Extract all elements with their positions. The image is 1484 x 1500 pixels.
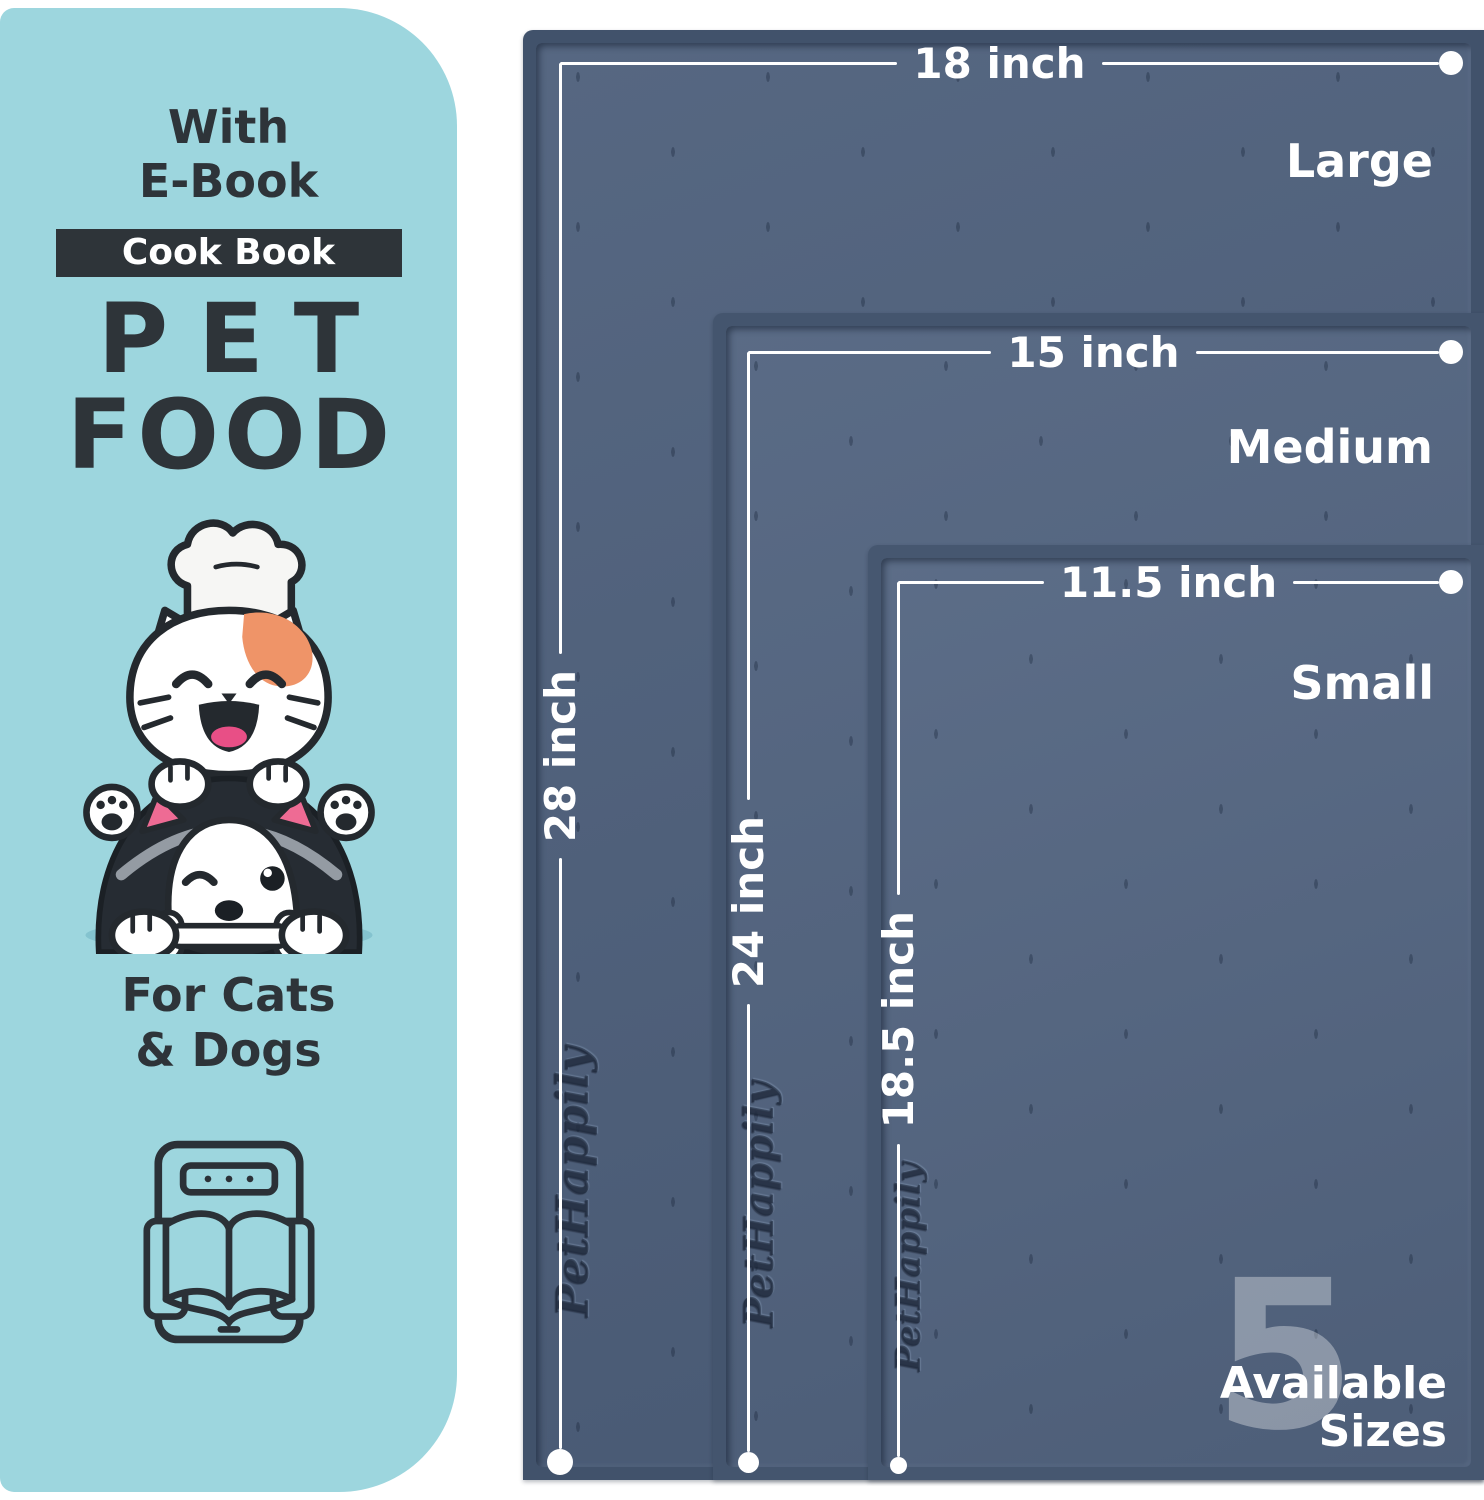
header-line2: E-Book <box>139 154 318 208</box>
dimension-line <box>747 352 750 800</box>
info-panel: With E-Book Cook Book PET FOOD <box>0 8 457 1492</box>
dimension-line <box>1102 62 1439 65</box>
dimension-label-large-width: 18 inch <box>897 39 1101 88</box>
dimension-length-medium: 24 inch <box>733 352 763 1473</box>
panel-header: With E-Book <box>0 100 457 209</box>
dimension-endpoint-dot <box>738 1452 759 1473</box>
cookbook-badge-label: Cook Book <box>122 232 335 273</box>
sizes-label-line1: Available <box>1220 1358 1447 1409</box>
dimension-endpoint-dot <box>547 1449 573 1475</box>
cookbook-badge: Cook Book <box>56 229 402 277</box>
dimension-line <box>1293 581 1439 584</box>
dimension-label-large-length: 28 inch <box>536 654 585 858</box>
dimension-line <box>559 858 562 1449</box>
product-infographic: With E-Book Cook Book PET FOOD <box>0 0 1484 1500</box>
ebook-icon <box>143 1136 315 1348</box>
dimension-width-small: 11.5 inch <box>898 569 1463 595</box>
size-label-small: Small <box>1290 656 1434 710</box>
size-label-large: Large <box>1286 134 1433 188</box>
dimension-length-small: 18.5 inch <box>883 582 913 1474</box>
dimension-line <box>897 1144 900 1457</box>
title-line1: PET <box>0 291 457 387</box>
dimension-line <box>748 351 991 354</box>
dimension-length-large: 28 inch <box>545 63 575 1475</box>
panel-footer: For Cats & Dogs <box>0 968 457 1078</box>
dimension-width-medium: 15 inch <box>748 339 1463 365</box>
size-label-medium: Medium <box>1227 420 1433 474</box>
footer-line1: For Cats <box>121 968 335 1022</box>
dimension-label-medium-width: 15 inch <box>991 328 1195 377</box>
dimension-endpoint-dot <box>1439 340 1463 364</box>
sizes-label-line2: Sizes <box>1319 1406 1447 1457</box>
dimension-line <box>898 581 1044 584</box>
ebook-icon-wrap <box>0 1136 457 1352</box>
pets-illustration <box>0 499 457 958</box>
dimension-label-medium-length: 24 inch <box>724 800 773 1004</box>
footer-line2: & Dogs <box>135 1023 321 1077</box>
dimension-line <box>1196 351 1439 354</box>
dimension-line <box>559 63 562 654</box>
dimension-endpoint-dot <box>1439 51 1463 75</box>
cat-chef-dog-illustration <box>59 499 399 954</box>
title-line2: FOOD <box>0 387 457 483</box>
dimension-label-small-length: 18.5 inch <box>874 895 923 1144</box>
dimension-endpoint-dot <box>1439 570 1463 594</box>
dimension-endpoint-dot <box>890 1457 907 1474</box>
dimension-line <box>747 1004 750 1452</box>
panel-title: PET FOOD <box>0 291 457 483</box>
dimension-line <box>897 582 900 895</box>
dimension-label-small-width: 11.5 inch <box>1044 558 1293 607</box>
dimension-line <box>560 62 897 65</box>
dimension-width-large: 18 inch <box>560 50 1463 76</box>
header-line1: With <box>168 100 289 154</box>
